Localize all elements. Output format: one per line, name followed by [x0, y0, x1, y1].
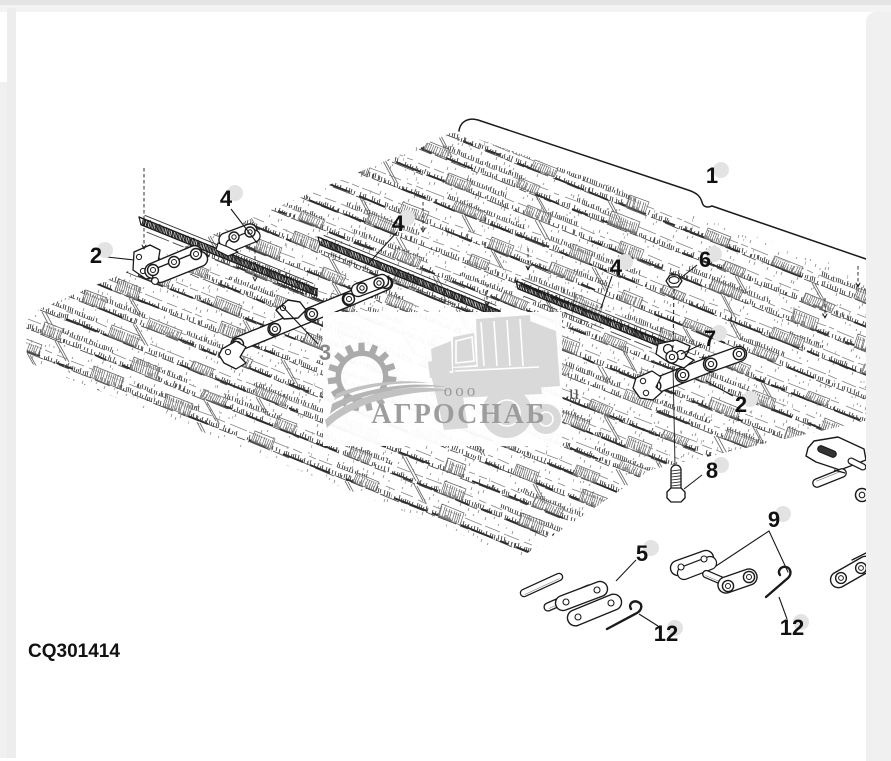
svg-text:4: 4	[220, 186, 233, 211]
svg-text:u: u	[569, 382, 579, 404]
svg-text:2: 2	[735, 392, 747, 417]
svg-text:12: 12	[654, 621, 678, 646]
svg-text:6: 6	[699, 247, 711, 272]
svg-text:2: 2	[90, 243, 102, 268]
svg-text:CQ301414: CQ301414	[28, 641, 120, 662]
svg-text:1: 1	[706, 163, 718, 188]
svg-text:9: 9	[768, 507, 780, 532]
svg-text:5: 5	[636, 541, 648, 566]
svg-text:ooo: ooo	[444, 381, 479, 400]
svg-text:4: 4	[392, 211, 405, 236]
svg-text:12: 12	[780, 615, 804, 640]
svg-text:4: 4	[610, 255, 623, 280]
svg-text:8: 8	[706, 458, 718, 483]
svg-text:7: 7	[704, 326, 716, 351]
svg-text:АГРОСНАБ: АГРОСНАБ	[371, 399, 546, 430]
svg-text:3: 3	[319, 340, 331, 365]
